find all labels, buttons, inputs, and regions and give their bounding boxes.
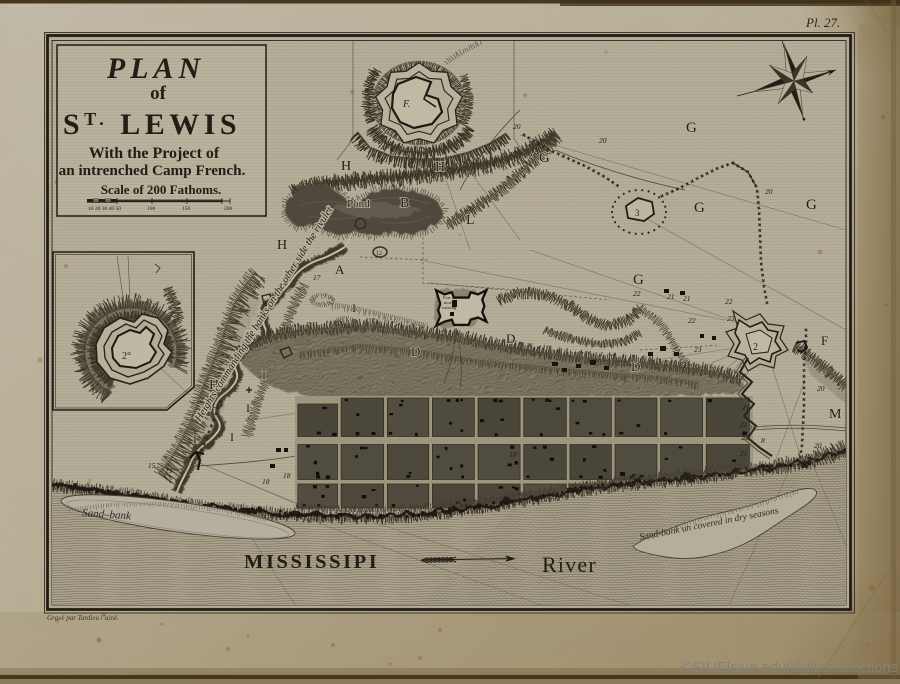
svg-text:2: 2 (753, 342, 758, 353)
svg-text:18: 18 (283, 471, 291, 480)
svg-text:10 20 30 40 50: 10 20 30 40 50 (88, 206, 121, 212)
svg-text:D: D (506, 331, 515, 346)
svg-text:100: 100 (147, 206, 156, 212)
svg-text:21: 21 (742, 403, 750, 412)
svg-text:3: 3 (635, 208, 640, 218)
svg-text:17: 17 (313, 273, 321, 282)
svg-text:M: M (829, 407, 842, 422)
svg-text:2°: 2° (122, 351, 131, 362)
svg-text:21: 21 (740, 420, 748, 429)
svg-text:13: 13 (165, 466, 173, 475)
svg-text:Pond: Pond (347, 198, 370, 210)
svg-text:D: D (411, 344, 420, 359)
svg-text:I: I (262, 368, 266, 382)
svg-text:20: 20 (466, 204, 474, 213)
svg-text:MISSISSIPI: MISSISSIPI (244, 551, 379, 573)
svg-text:G: G (539, 150, 550, 166)
svg-text:D: D (631, 359, 640, 374)
svg-text:an intrenched Camp French.: an intrenched Camp French. (59, 162, 246, 179)
svg-text:G: G (806, 197, 817, 213)
svg-text:20: 20 (513, 122, 521, 131)
svg-text:G: G (633, 272, 644, 288)
svg-text:Pl. 27.: Pl. 27. (805, 15, 840, 30)
svg-text:I: I (246, 401, 250, 415)
svg-text:21: 21 (741, 433, 749, 442)
svg-text:Scale of 200 Fathoms.: Scale of 200 Fathoms. (101, 182, 222, 197)
svg-text:of: of (150, 83, 167, 104)
svg-text:PLAN: PLAN (106, 52, 205, 85)
svg-text:H: H (277, 238, 287, 253)
svg-text:River: River (542, 552, 597, 577)
svg-text:23: 23 (727, 314, 735, 323)
svg-text:20: 20 (817, 384, 825, 393)
svg-text:G: G (686, 120, 697, 136)
svg-text:H: H (435, 160, 445, 175)
svg-text:21: 21 (683, 294, 691, 303)
svg-text:18: 18 (262, 477, 270, 486)
svg-text:L: L (466, 213, 475, 228)
svg-text:©SIUE|siue.edu/digitalcollecti: ©SIUE|siue.edu/digitalcollections (681, 660, 898, 676)
svg-text:Gravé par Tardieu l’ainé.: Gravé par Tardieu l’ainé. (47, 614, 119, 622)
svg-text:22: 22 (633, 289, 641, 298)
svg-text:22: 22 (688, 316, 696, 325)
svg-text:9: 9 (196, 462, 200, 471)
svg-text:existing: existing (442, 305, 457, 310)
svg-text:21: 21 (667, 292, 675, 301)
svg-text:I: I (352, 301, 356, 315)
svg-text:20: 20 (765, 187, 773, 196)
svg-text:I: I (193, 432, 197, 446)
svg-text:F: F (821, 333, 828, 348)
svg-text:23: 23 (694, 345, 702, 354)
svg-text:15: 15 (148, 461, 156, 470)
svg-text:20: 20 (814, 441, 822, 450)
svg-text:A: A (335, 262, 345, 277)
svg-text:18: 18 (509, 450, 517, 459)
svg-text:21: 21 (740, 449, 748, 458)
svg-text:8: 8 (761, 436, 765, 445)
svg-text:With the Project of: With the Project of (89, 145, 220, 162)
svg-text:B: B (400, 196, 409, 211)
svg-text:F.: F. (402, 99, 410, 110)
svg-text:20: 20 (599, 136, 607, 145)
svg-text:150: 150 (182, 206, 191, 212)
svg-text:22: 22 (725, 297, 733, 306)
svg-text:I: I (230, 430, 234, 444)
svg-text:12: 12 (376, 251, 382, 257)
svg-text:G: G (694, 200, 705, 216)
svg-text:200: 200 (224, 206, 233, 212)
svg-text:H: H (341, 159, 351, 174)
